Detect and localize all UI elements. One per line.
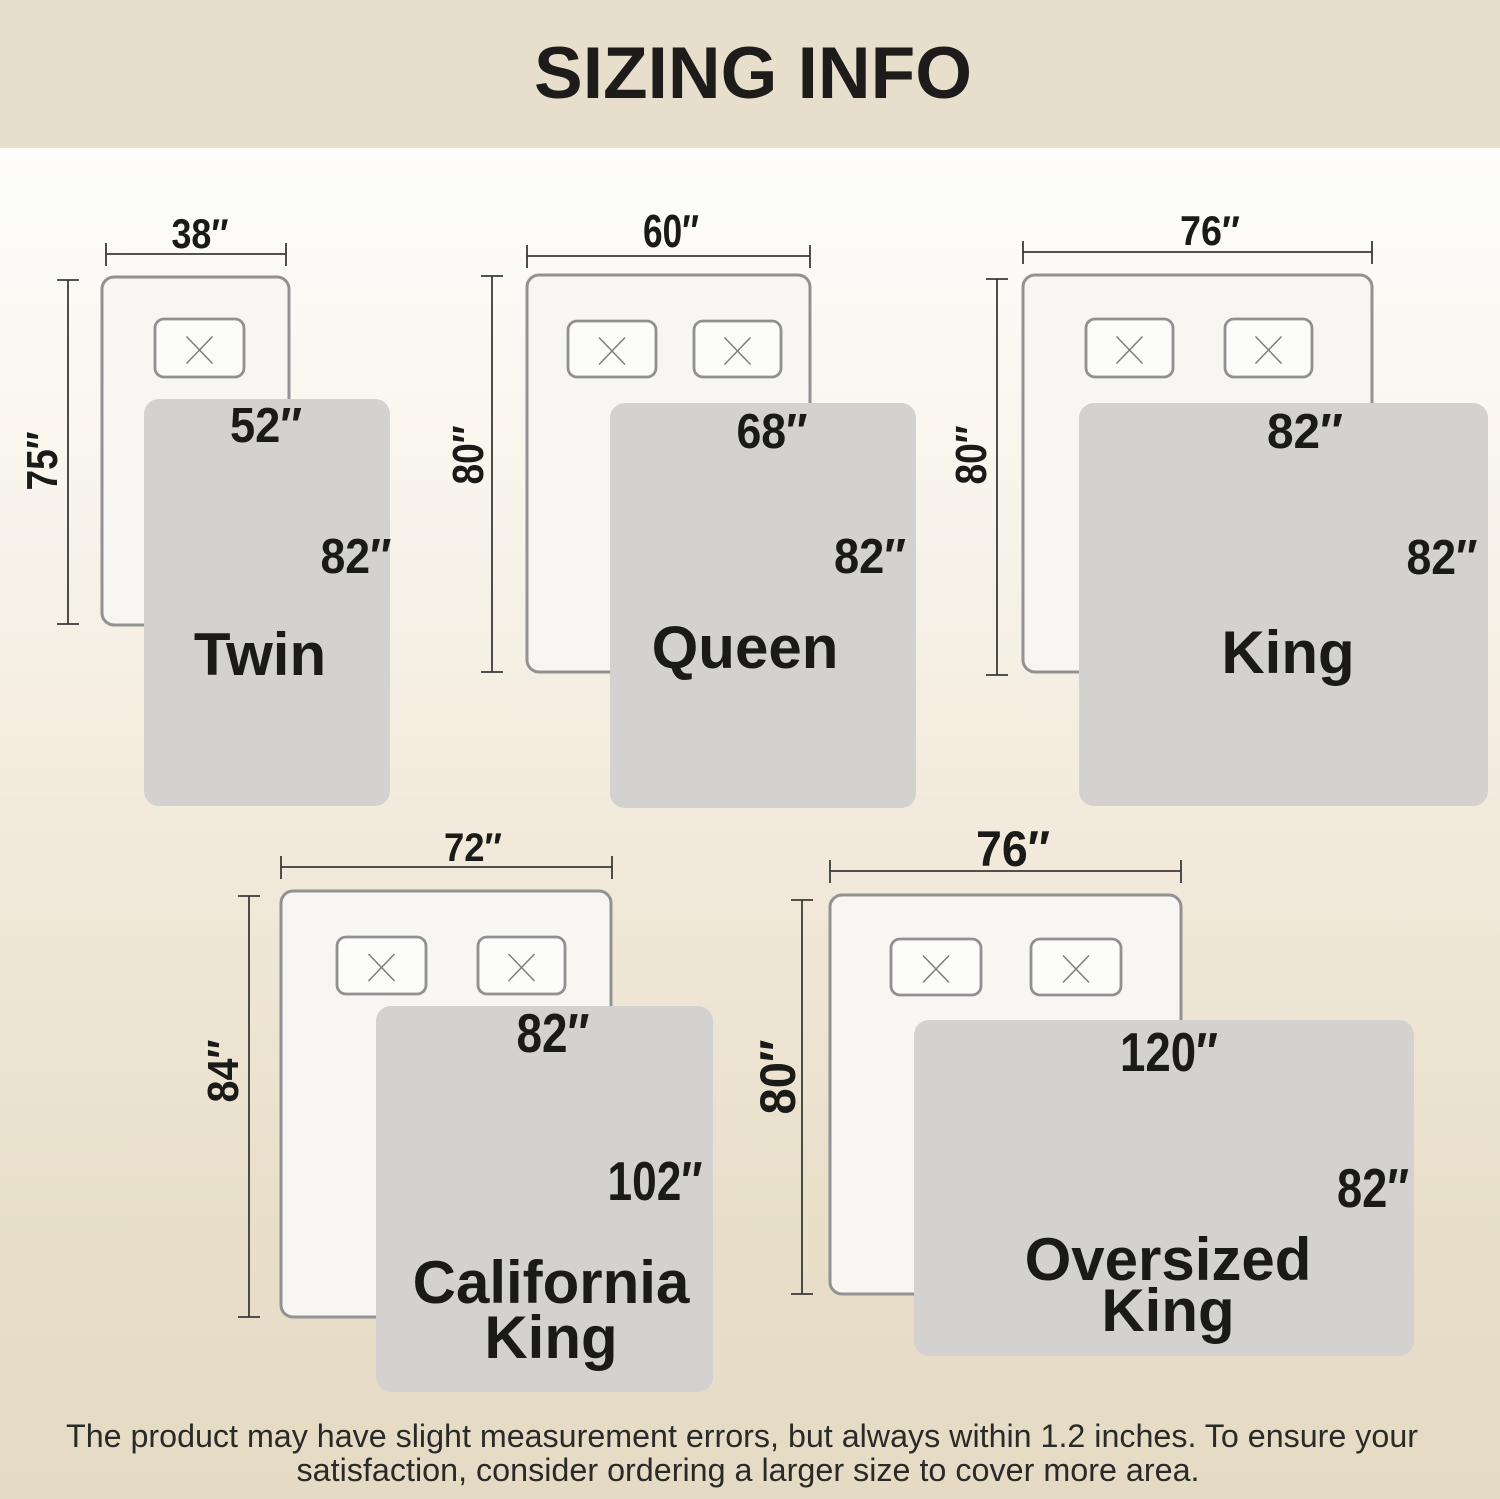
svg-text:76″: 76″ [1180,207,1240,254]
svg-text:72″: 72″ [444,826,502,870]
svg-text:80″: 80″ [444,426,493,485]
svg-text:52″: 52″ [230,399,302,453]
svg-text:82″: 82″ [1337,1157,1409,1219]
svg-text:80″: 80″ [750,1039,806,1114]
svg-text:SIZING INFO: SIZING INFO [534,33,972,114]
svg-text:82″: 82″ [1407,531,1478,585]
svg-text:84″: 84″ [199,1040,248,1103]
svg-text:60″: 60″ [643,205,699,257]
svg-text:75″: 75″ [18,432,67,491]
svg-text:Queen: Queen [652,614,839,681]
svg-text:The product may have slight me: The product may have slight measurement … [66,1418,1418,1454]
svg-text:102″: 102″ [608,1150,703,1212]
svg-text:satisfaction, consider orderin: satisfaction, consider ordering a larger… [297,1452,1200,1488]
svg-text:80″: 80″ [947,426,996,485]
svg-text:King: King [484,1304,617,1371]
svg-text:King: King [1221,619,1354,686]
svg-text:82″: 82″ [834,530,906,584]
svg-text:38″: 38″ [172,210,229,257]
svg-text:82″: 82″ [517,1002,590,1064]
svg-text:82″: 82″ [321,530,392,584]
svg-text:82″: 82″ [1267,405,1343,459]
svg-text:Twin: Twin [194,621,326,688]
svg-text:King: King [1101,1277,1234,1344]
svg-text:120″: 120″ [1120,1021,1218,1083]
svg-text:68″: 68″ [737,405,808,459]
svg-text:76″: 76″ [976,821,1050,877]
